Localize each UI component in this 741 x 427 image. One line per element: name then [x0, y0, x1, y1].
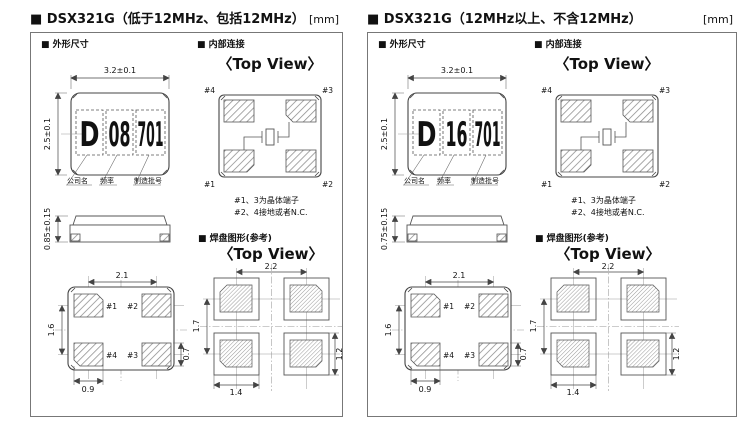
marking-company-code: D — [417, 115, 437, 155]
panel-header: ■ DSX321G（低于12MHz、包括12MHz） [mm] — [30, 8, 343, 32]
bottom-pin-label-4: #4 — [443, 351, 454, 360]
land-pad-width-label: 1.4 — [230, 388, 243, 397]
panel-header: ■ DSX321G（12MHz以上、不含12MHz） [mm] — [367, 8, 737, 32]
dim-height-label: 2.5±0.1 — [43, 118, 52, 150]
panel-title: ■ DSX321G（低于12MHz、包括12MHz） — [30, 8, 305, 27]
land-pad-height-label: 1.2 — [335, 348, 344, 361]
bottom-pin-label-4: #4 — [106, 351, 117, 360]
side-pad — [408, 234, 417, 241]
bottom-pad-height-label: 0.7 — [519, 348, 528, 361]
internal-connection-drawing: 〈Top View〉 #4 #3 #1 #2 — [541, 55, 670, 217]
bottom-pad-1 — [411, 294, 440, 317]
note-line-2: #2、4接地或者N.C. — [571, 207, 645, 217]
bottom-pin-label-1: #1 — [106, 302, 117, 311]
side-pad — [71, 234, 80, 241]
pad-1-hatched — [561, 150, 591, 172]
pad-1-hatched — [224, 150, 254, 172]
bottom-pad-width-label: 0.9 — [82, 385, 95, 394]
dim-height-label: 2.5±0.1 — [380, 118, 389, 150]
dim-thickness-label: 0.85±0.15 — [43, 208, 52, 250]
land-pitch-y-label: 1.7 — [192, 320, 201, 333]
note-line-1: #1、3为晶体端子 — [571, 195, 636, 205]
bottom-pads-drawing: #1 #2 #4 #3 2.1 1.6 0.9 0.7 — [47, 271, 191, 394]
land-pattern-drawing: ■ 焊盘图形(参考) 〈Top View〉 2.2 1.7 — [192, 232, 344, 397]
land-pad-hatched — [290, 340, 322, 367]
technical-drawing: ■ 外形尺寸 ■ 内部连接 3.2±0.1 2.5±0.1 D — [31, 33, 344, 416]
section-outline-dims: ■ 外形尺寸 — [41, 38, 89, 50]
pin-label-3: #3 — [659, 86, 670, 95]
side-view-drawing: 0.85±0.15 — [43, 208, 170, 250]
dim-width-label: 3.2±0.1 — [441, 66, 473, 75]
pad-4-hatched — [224, 100, 254, 122]
land-pattern-drawing: ■ 焊盘图形(参考) 〈Top View〉 2.2 1.7 — [529, 232, 681, 397]
land-top-view-title: 〈Top View〉 — [555, 245, 660, 263]
pin-label-2: #2 — [659, 180, 670, 189]
callout-frequency-label: 频率 — [100, 176, 114, 185]
section-outline-dims: ■ 外形尺寸 — [378, 38, 426, 50]
bottom-pads-drawing: #1 #2 #4 #3 2.1 1.6 0.9 0.7 — [384, 271, 528, 394]
callout-lot-label: 制造批号 — [471, 176, 499, 185]
marking-frequency-code: 08 — [109, 115, 131, 155]
land-pitch-x-label: 2.2 — [265, 262, 278, 271]
bottom-pin-label-2: #2 — [127, 302, 138, 311]
land-pad-hatched — [220, 340, 252, 367]
pad-4-hatched — [561, 100, 591, 122]
callout-frequency-label: 频率 — [437, 176, 451, 185]
pin-label-1: #1 — [541, 180, 552, 189]
callout-lot-label: 制造批号 — [134, 176, 162, 185]
unit-label: [mm] — [703, 13, 737, 26]
side-pad — [160, 234, 169, 241]
side-view-drawing: 0.75±0.15 — [380, 208, 507, 250]
outline-drawing: 3.2±0.1 2.5±0.1 D 16 701 公司名 频 — [380, 66, 506, 185]
bottom-pad-4 — [411, 343, 440, 366]
callout-company-label: 公司名 — [67, 176, 88, 185]
callout-company-label: 公司名 — [404, 176, 425, 185]
section-land-pattern: ■ 焊盘图形(参考) — [535, 232, 609, 244]
datasheet-page: ■ DSX321G（低于12MHz、包括12MHz） [mm] — [0, 0, 741, 427]
section-internal-connection: ■ 内部连接 — [534, 38, 582, 50]
land-pitch-x-label: 2.2 — [602, 262, 615, 271]
panel-box: ■ 外形尺寸 ■ 内部连接 3.2±0.1 2.5±0.1 D — [30, 32, 343, 417]
panel-title: ■ DSX321G（12MHz以上、不含12MHz） — [367, 8, 642, 27]
internal-connection-drawing: 〈Top View〉 #4 #3 #1 #2 — [204, 55, 333, 217]
bottom-pad-2 — [479, 294, 508, 317]
pad-3-hatched — [623, 100, 653, 122]
side-pad — [497, 234, 506, 241]
land-pad-hatched — [627, 340, 659, 367]
bottom-pad-3 — [479, 343, 508, 366]
pin-label-3: #3 — [322, 86, 333, 95]
bottom-pin-label-2: #2 — [464, 302, 475, 311]
pin-label-2: #2 — [322, 180, 333, 189]
marking-company-code: D — [80, 115, 100, 155]
bottom-pitch-y-label: 1.6 — [47, 324, 56, 337]
dim-width-label: 3.2±0.1 — [104, 66, 136, 75]
bottom-pin-label-3: #3 — [464, 351, 475, 360]
pad-2-hatched — [286, 150, 316, 172]
section-internal-connection: ■ 内部连接 — [197, 38, 245, 50]
panel-high-freq: ■ DSX321G（12MHz以上、不含12MHz） [mm] — [367, 8, 737, 417]
pad-3-hatched — [286, 100, 316, 122]
land-pad-height-label: 1.2 — [672, 348, 681, 361]
land-pad-hatched — [557, 285, 589, 312]
bottom-pad-height-label: 0.7 — [182, 348, 191, 361]
panel-box: ■ 外形尺寸 ■ 内部连接 3.2±0.1 2.5±0.1 D — [367, 32, 737, 417]
internal-top-view-title: 〈Top View〉 — [554, 55, 659, 73]
bottom-pin-label-1: #1 — [443, 302, 454, 311]
marking-lot-code: 701 — [138, 115, 164, 155]
marking-lot-code: 701 — [475, 115, 501, 155]
pad-2-hatched — [623, 150, 653, 172]
unit-label: [mm] — [309, 13, 343, 26]
marking-frequency-code: 16 — [446, 115, 468, 155]
dim-thickness-label: 0.75±0.15 — [380, 208, 389, 250]
internal-top-view-title: 〈Top View〉 — [217, 55, 322, 73]
land-pad-hatched — [290, 285, 322, 312]
pin-label-4: #4 — [204, 86, 215, 95]
bottom-pitch-x-label: 2.1 — [116, 271, 129, 280]
land-pitch-y-label: 1.7 — [529, 320, 538, 333]
panel-low-freq: ■ DSX321G（低于12MHz、包括12MHz） [mm] — [30, 8, 343, 417]
bottom-pad-1 — [74, 294, 103, 317]
bottom-pad-width-label: 0.9 — [419, 385, 432, 394]
bottom-pad-3 — [142, 343, 171, 366]
land-top-view-title: 〈Top View〉 — [218, 245, 323, 263]
land-pad-hatched — [627, 285, 659, 312]
pin-label-4: #4 — [541, 86, 552, 95]
bottom-pitch-x-label: 2.1 — [453, 271, 466, 280]
section-land-pattern: ■ 焊盘图形(参考) — [198, 232, 272, 244]
outline-drawing: 3.2±0.1 2.5±0.1 D 08 701 公司名 频 — [43, 66, 169, 185]
pin-label-1: #1 — [204, 180, 215, 189]
note-line-1: #1、3为晶体端子 — [234, 195, 299, 205]
land-pad-hatched — [220, 285, 252, 312]
bottom-pin-label-3: #3 — [127, 351, 138, 360]
bottom-pad-2 — [142, 294, 171, 317]
technical-drawing: ■ 外形尺寸 ■ 内部连接 3.2±0.1 2.5±0.1 D — [368, 33, 681, 416]
bottom-pitch-y-label: 1.6 — [384, 324, 393, 337]
land-pad-hatched — [557, 340, 589, 367]
note-line-2: #2、4接地或者N.C. — [234, 207, 308, 217]
bottom-pad-4 — [74, 343, 103, 366]
land-pad-width-label: 1.4 — [567, 388, 580, 397]
